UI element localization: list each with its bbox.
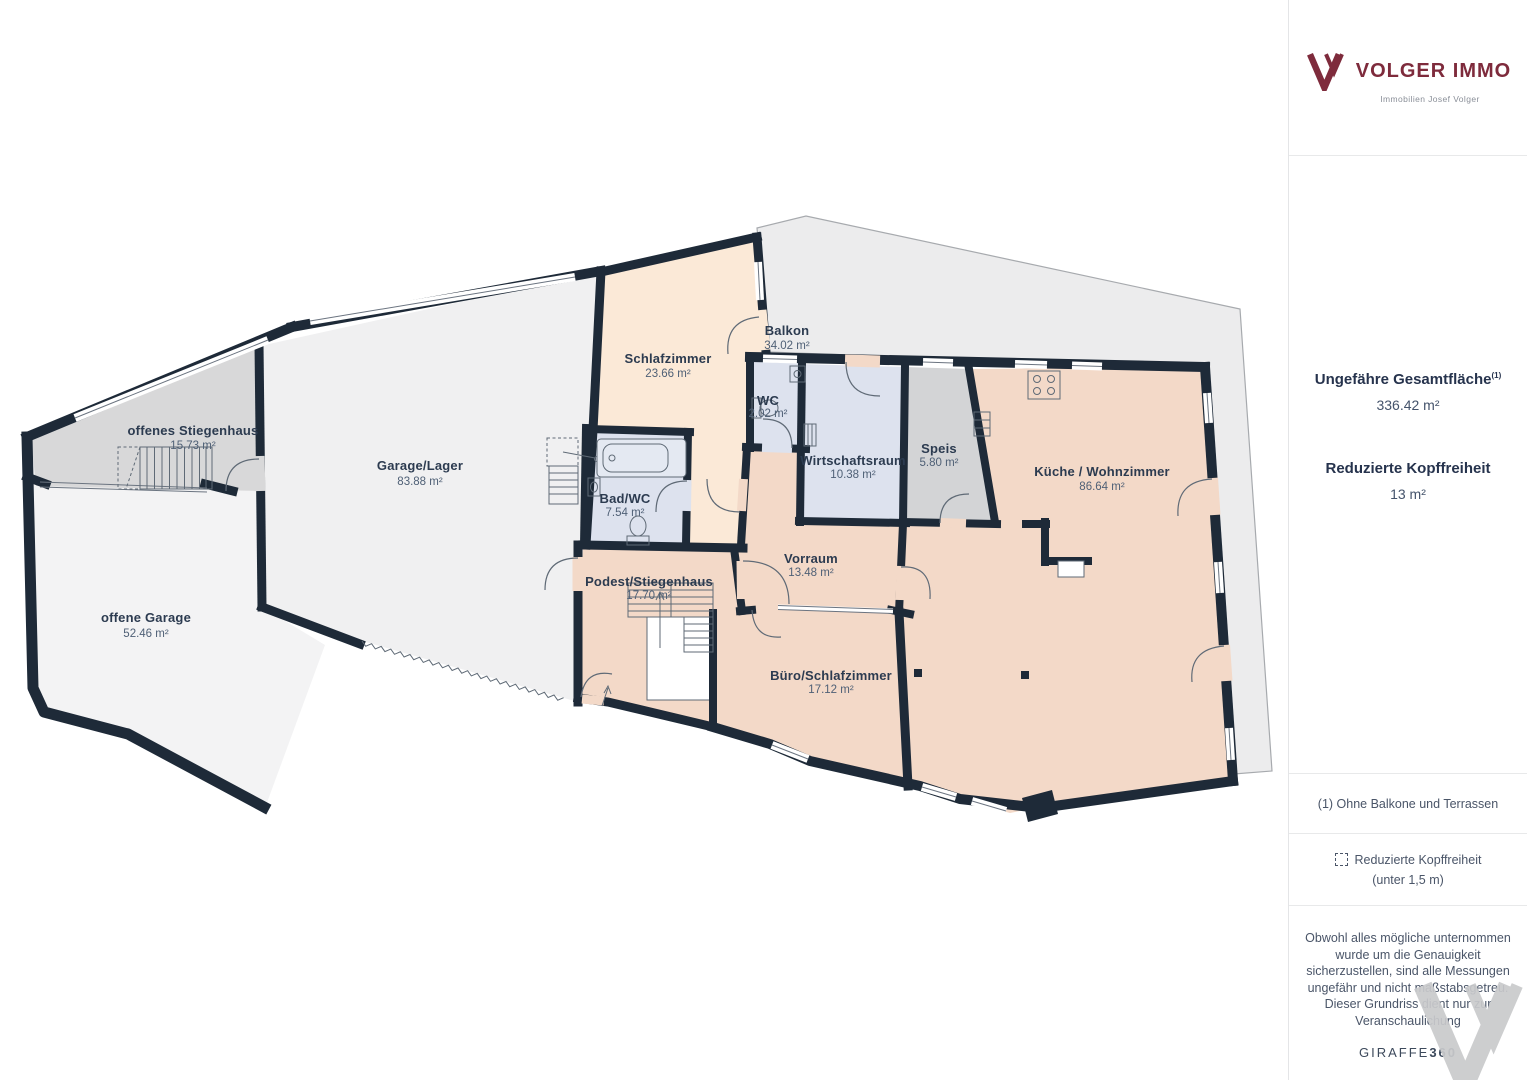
room-label-schlafzimmer: Schlafzimmer <box>625 351 712 366</box>
room-area-wc: 2.02 m² <box>749 408 788 420</box>
stair-void <box>647 617 713 700</box>
room-label-kueche-wohnzimmer: Küche / Wohnzimmer <box>1034 464 1170 479</box>
info-sidebar: VOLGER IMMO Immobilien Josef Volger Unge… <box>1288 0 1527 1080</box>
brand-name: VOLGER IMMO <box>1356 60 1511 83</box>
room-label-offene-garage: offene Garage <box>101 610 191 625</box>
footnote-1: (1) Ohne Balkone und Terrassen <box>1289 773 1527 833</box>
reduced-headroom-legend: Reduzierte Kopffreiheit (unter 1,5 m) <box>1289 833 1527 905</box>
room-label-speis: Speis <box>921 441 957 456</box>
reduced-headroom-value: 13 m² <box>1289 486 1527 502</box>
room-label-podest-stiegenhaus: Podest/Stiegenhaus <box>585 574 713 589</box>
room-area-offenes-stiegenhaus: 15.73 m² <box>170 440 216 452</box>
brand-header: VOLGER IMMO Immobilien Josef Volger <box>1289 0 1527 156</box>
room-area-kueche-wohnzimmer: 86.64 m² <box>1079 481 1125 493</box>
legend-text-line2: (unter 1,5 m) <box>1372 870 1444 890</box>
room-area-wirtschaftsraum: 10.38 m² <box>830 469 876 481</box>
room-area-garage-lager: 83.88 m² <box>397 476 443 488</box>
room-area-offene-garage: 52.46 m² <box>123 628 169 640</box>
bathtub-icon <box>597 439 686 477</box>
reduced-headroom-label: Reduzierte Kopffreiheit <box>1289 460 1527 477</box>
room-label-offenes-stiegenhaus: offenes Stiegenhaus <box>128 423 259 438</box>
total-area-value: 336.42 m² <box>1289 397 1527 413</box>
column-dot-1 <box>914 669 922 677</box>
room-label-wc: WC <box>757 393 779 408</box>
reduced-headroom-legend-icon <box>1335 853 1348 866</box>
legend-text-line1: Reduzierte Kopffreiheit <box>1355 850 1482 870</box>
brand-tagline: Immobilien Josef Volger <box>1380 94 1479 104</box>
column-dot-2 <box>1021 671 1029 679</box>
floorplan-canvas: offenes Stiegenhaus 15.73 m² Garage/Lage… <box>0 0 1288 1080</box>
total-area-label: Ungefähre Gesamtfläche(1) <box>1289 371 1527 388</box>
room-area-podest-stiegenhaus: 17.70 m² <box>626 590 672 602</box>
footnote-marker: (1) <box>1491 371 1501 380</box>
room-label-garage-lager: Garage/Lager <box>377 458 463 473</box>
utility-fill <box>799 364 905 523</box>
room-label-balkon: Balkon <box>765 323 810 338</box>
room-label-vorraum: Vorraum <box>784 551 838 566</box>
page: { "brand": { "name": "VOLGER IMMO", "tag… <box>0 0 1527 1080</box>
room-area-vorraum: 13.48 m² <box>788 567 834 579</box>
room-area-schlafzimmer: 23.66 m² <box>645 368 691 380</box>
room-area-buero-schlafzimmer: 17.12 m² <box>808 684 854 696</box>
disclaimer-block: Obwohl alles mögliche unternommen wurde … <box>1289 905 1527 1080</box>
watermark-v-icon <box>1395 976 1527 1080</box>
area-metrics: Ungefähre Gesamtfläche(1) 336.42 m² Redu… <box>1289 156 1527 773</box>
room-label-buero-schlafzimmer: Büro/Schlafzimmer <box>770 668 892 683</box>
room-label-bad-wc: Bad/WC <box>599 491 650 506</box>
fireplace-niche <box>1058 561 1084 577</box>
floorplan-drawing: offenes Stiegenhaus 15.73 m² Garage/Lage… <box>0 0 1288 1080</box>
room-area-balkon: 34.02 m² <box>764 340 810 352</box>
room-label-wirtschaftsraum: Wirtschaftsraum <box>800 453 905 468</box>
room-area-bad-wc: 7.54 m² <box>606 507 645 519</box>
stove-icon <box>1028 371 1060 399</box>
room-area-speis: 5.80 m² <box>920 457 959 469</box>
volger-logo-icon <box>1305 51 1347 91</box>
